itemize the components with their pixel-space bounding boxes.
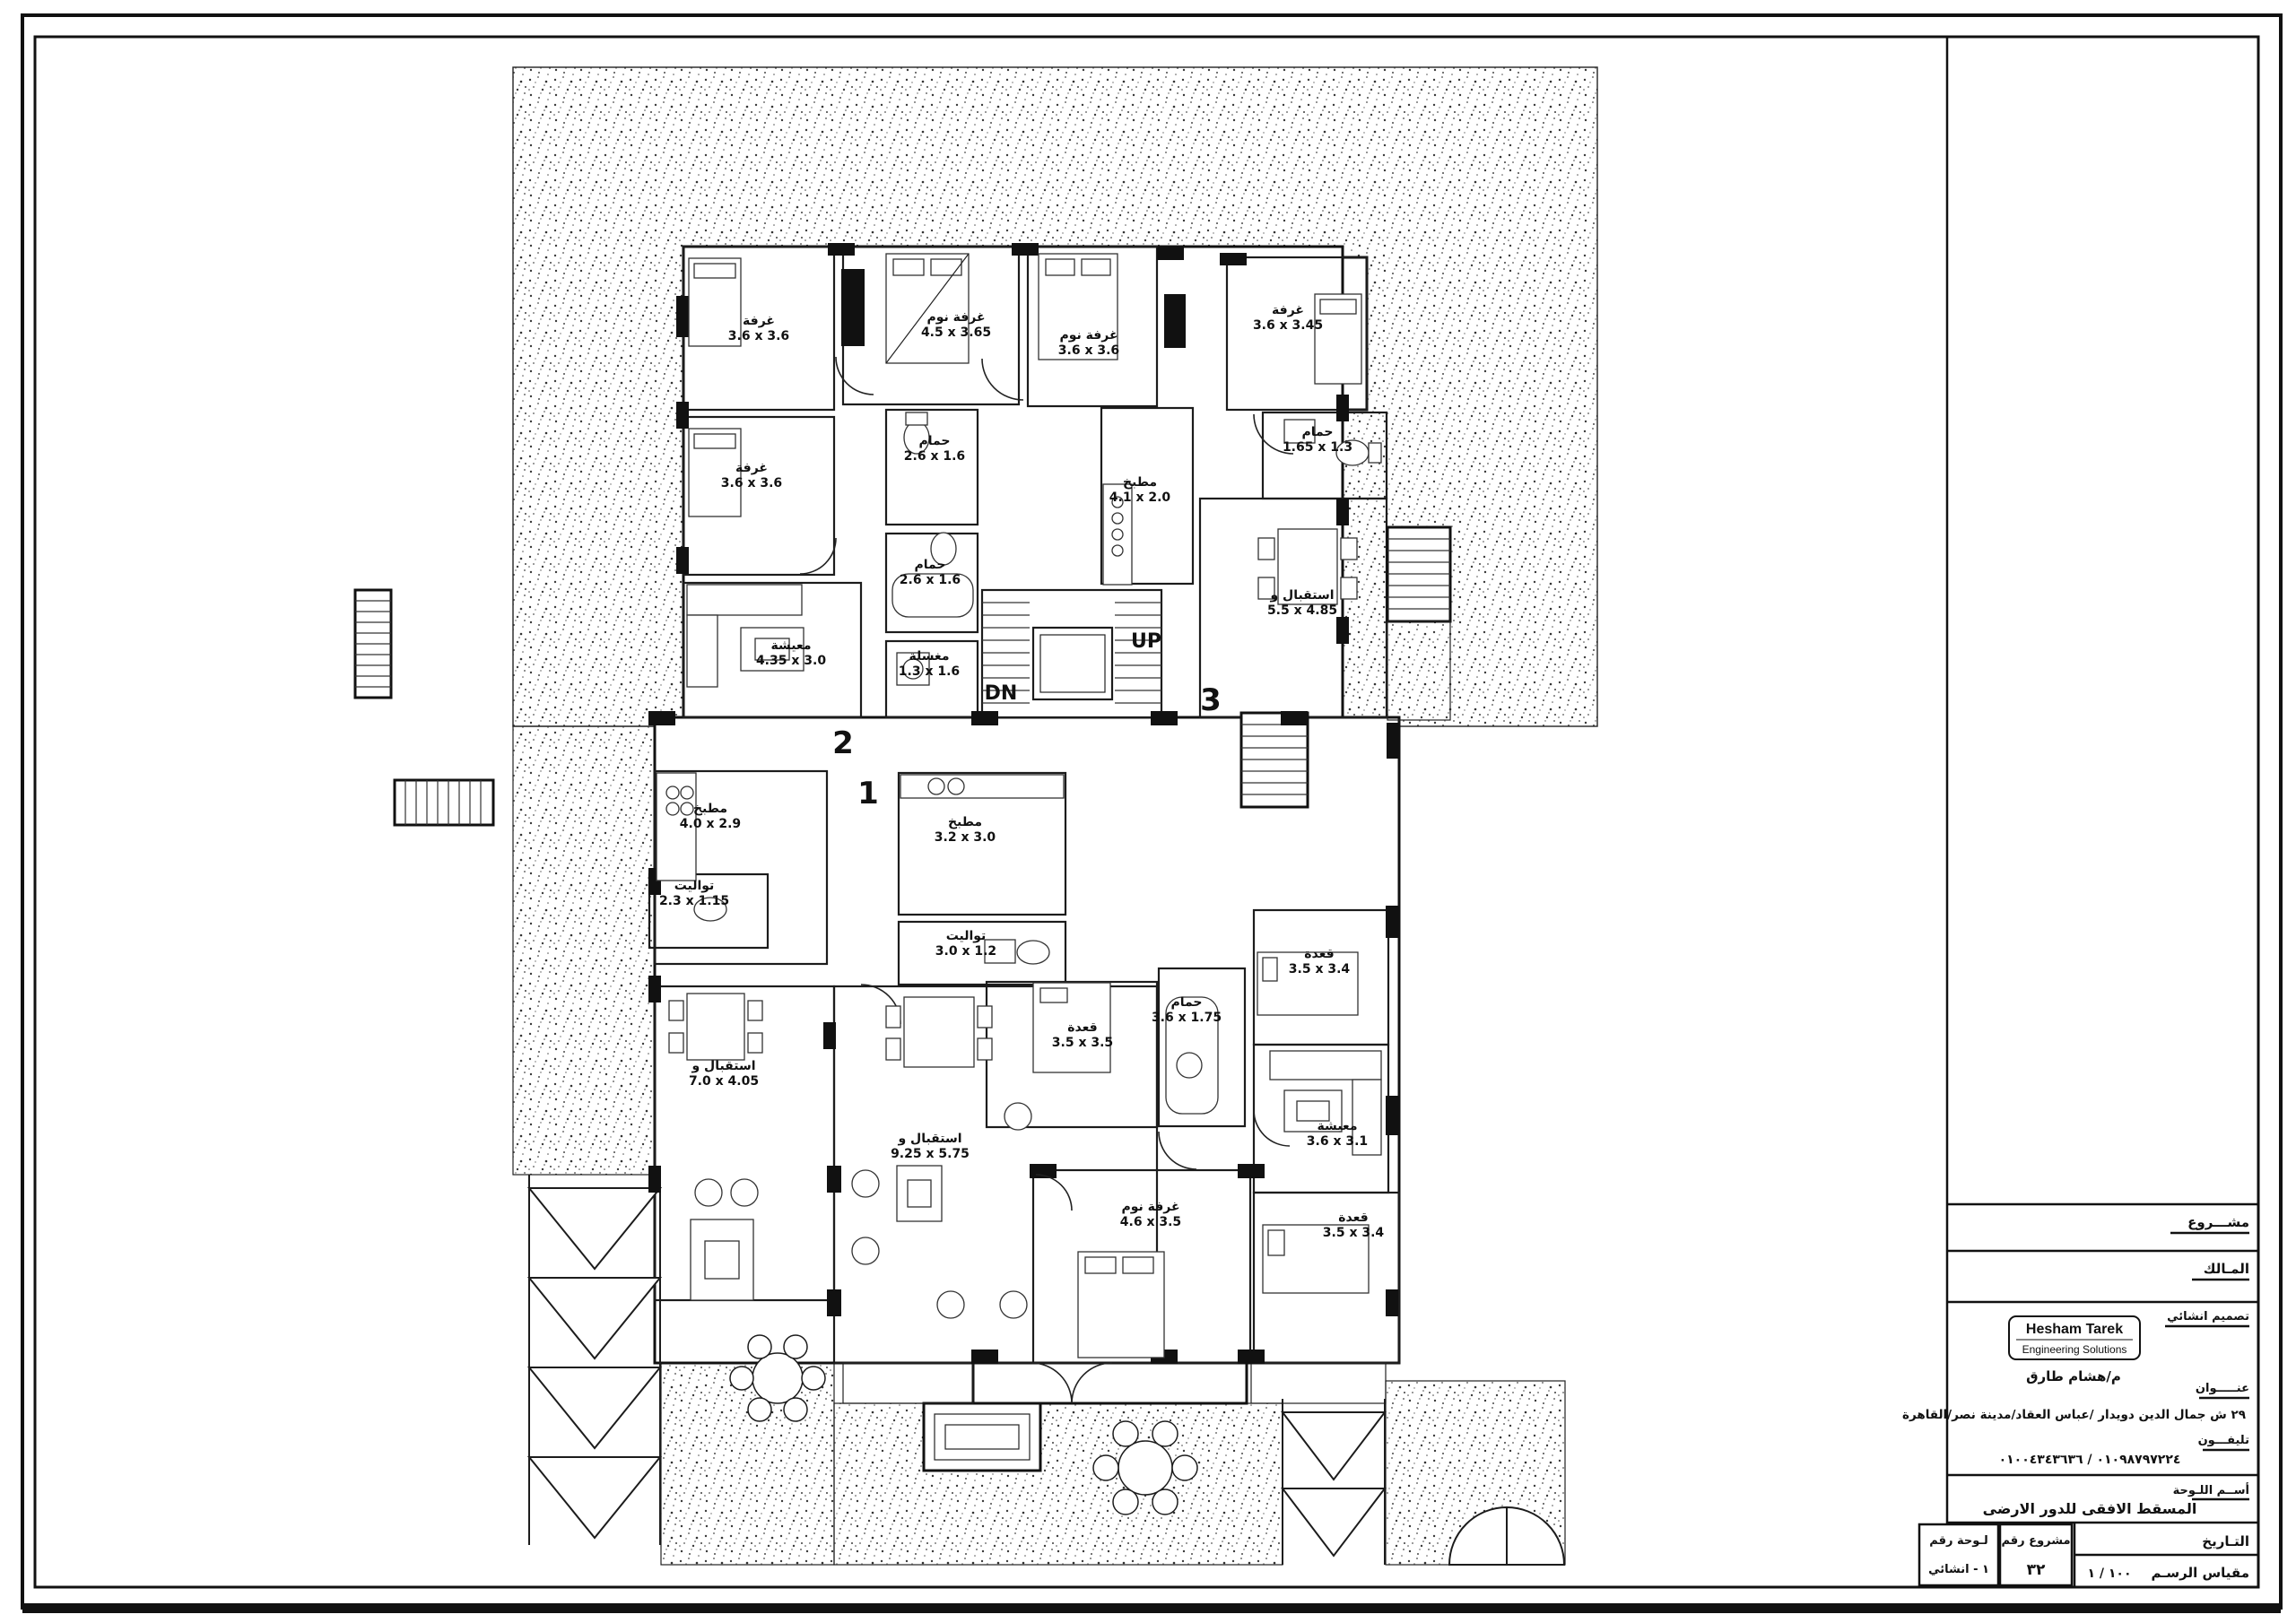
axis-marker: 2	[832, 725, 854, 761]
scale-label: مقياس الرسـم	[2151, 1565, 2249, 1581]
entrance-porch	[924, 1403, 1040, 1471]
room-label: استقبال و5.5 x 4.85	[1267, 588, 1337, 618]
project-no-value: ٣٢	[2027, 1561, 2046, 1579]
bed	[886, 254, 969, 363]
bed	[1078, 1252, 1164, 1358]
axis-marker: 1	[857, 776, 879, 811]
room-label: غرفة نوم4.6 x 3.5	[1120, 1200, 1181, 1229]
stair-direction-label: DN	[985, 682, 1018, 705]
sheet-no-label: لـوحة رقم	[1929, 1534, 1987, 1548]
project-label: مشـــروع	[2187, 1214, 2249, 1230]
scale-value: ١٠٠ / ١	[2087, 1567, 2131, 1581]
room-label: استقبال و7.0 x 4.05	[689, 1059, 759, 1089]
phone-value: ٠١٠٩٨٧٩٧٢٢٤ / ٠١٠٠٤٣٤٣٦٣٦	[1999, 1453, 2181, 1467]
logo-title: Hesham Tarek	[2026, 1322, 2123, 1337]
room-label: استقبال و9.25 x 5.75	[891, 1132, 970, 1161]
project-no-label: مشروع رقم	[2001, 1534, 2070, 1548]
project-number-cell: مشروع رقم ٣٢	[2000, 1524, 2072, 1585]
stair-direction-label: UP	[1131, 630, 1161, 653]
sheet-number-cell: لـوحة رقم ١ - انشائي	[1919, 1524, 1998, 1585]
bed	[1315, 294, 1361, 384]
drawing-sheet: غرفة3.6 x 3.6غرفة نوم4.5 x 3.65غرفة نوم3…	[0, 0, 2296, 1623]
phone-label: تليفـــون	[2198, 1434, 2249, 1447]
company-logo: Hesham Tarek Engineering Solutions	[2009, 1316, 2140, 1359]
sheet-name-label: أســم اللـوحة	[2173, 1482, 2249, 1497]
engineer-name: م/هشام طارق	[2026, 1368, 2121, 1384]
side-entry-steps	[1241, 713, 1308, 807]
room-label: غرفة نوم4.5 x 3.65	[921, 310, 991, 340]
address-value: ٢٩ ش جمال الدين دويدار /عباس العقاد/مدين…	[1902, 1408, 2246, 1422]
owner-label: المـالك	[2204, 1261, 2249, 1277]
sheet-name-value: المسقط الافقى للدور الارضى	[1983, 1500, 2197, 1517]
sheet-no-value: ١ - انشائي	[1928, 1563, 1989, 1576]
address-label: عنـــــوان	[2196, 1382, 2249, 1395]
date-label: التـاريخ	[2202, 1533, 2249, 1549]
floor-plan-canvas: غرفة3.6 x 3.6غرفة نوم4.5 x 3.65غرفة نوم3…	[0, 0, 2296, 1623]
structural-design-label: تصميم انشائي	[2167, 1310, 2249, 1324]
bed	[689, 429, 741, 516]
logo-subtitle: Engineering Solutions	[2022, 1343, 2127, 1356]
room-label: غرفة نوم3.6 x 3.6	[1058, 328, 1119, 358]
axis-marker: 3	[1200, 682, 1222, 718]
